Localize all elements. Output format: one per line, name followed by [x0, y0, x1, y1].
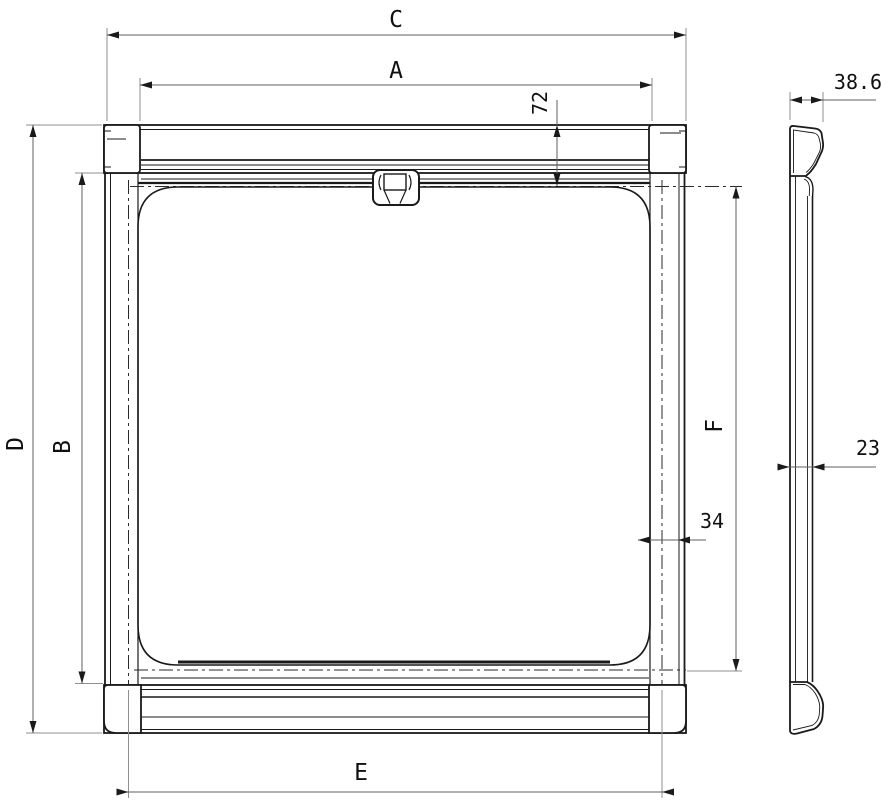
profile-bottom-cap	[790, 682, 823, 734]
latch-handle	[373, 170, 419, 205]
dimension-b: B	[50, 173, 103, 684]
dimension-f: F	[687, 187, 742, 672]
dimension-a: A	[140, 58, 652, 121]
dim-label-c: C	[389, 7, 403, 33]
rail-left-cap	[104, 685, 141, 733]
right-jamb	[650, 173, 685, 685]
dimension-d: D	[3, 125, 102, 733]
dimension-23: 23	[778, 436, 881, 471]
dim-label-b: B	[50, 440, 76, 454]
blind-opening	[138, 187, 650, 665]
dim-label-a: A	[389, 58, 403, 84]
profile-top-cap	[790, 126, 823, 176]
rail-right-cap	[649, 685, 686, 733]
dimension-38-6: 38.6	[790, 70, 882, 122]
dimension-72: 72	[528, 91, 561, 186]
dim-label-d: D	[3, 437, 29, 451]
side-profile-view	[790, 126, 823, 734]
technical-drawing-canvas: C A E D B	[0, 0, 888, 803]
dim-label-f: F	[702, 419, 728, 433]
dimension-e: E	[117, 690, 675, 798]
housing-left-cap	[104, 125, 140, 173]
blind-bottom-slot	[134, 670, 686, 678]
dim-label-72: 72	[528, 91, 552, 115]
housing-right-cap	[649, 125, 686, 173]
dimension-34: 34	[638, 509, 724, 544]
dim-label-34: 34	[700, 509, 724, 533]
left-jamb	[105, 173, 138, 685]
front-view	[104, 125, 742, 733]
roller-housing	[104, 125, 686, 173]
dim-label-e: E	[354, 760, 368, 786]
dim-label-38-6: 38.6	[834, 70, 882, 94]
bottom-rail	[104, 685, 686, 733]
dim-label-23: 23	[856, 436, 880, 460]
profile-bar	[790, 176, 813, 682]
blind-frame-drawing: C A E D B	[0, 0, 888, 803]
